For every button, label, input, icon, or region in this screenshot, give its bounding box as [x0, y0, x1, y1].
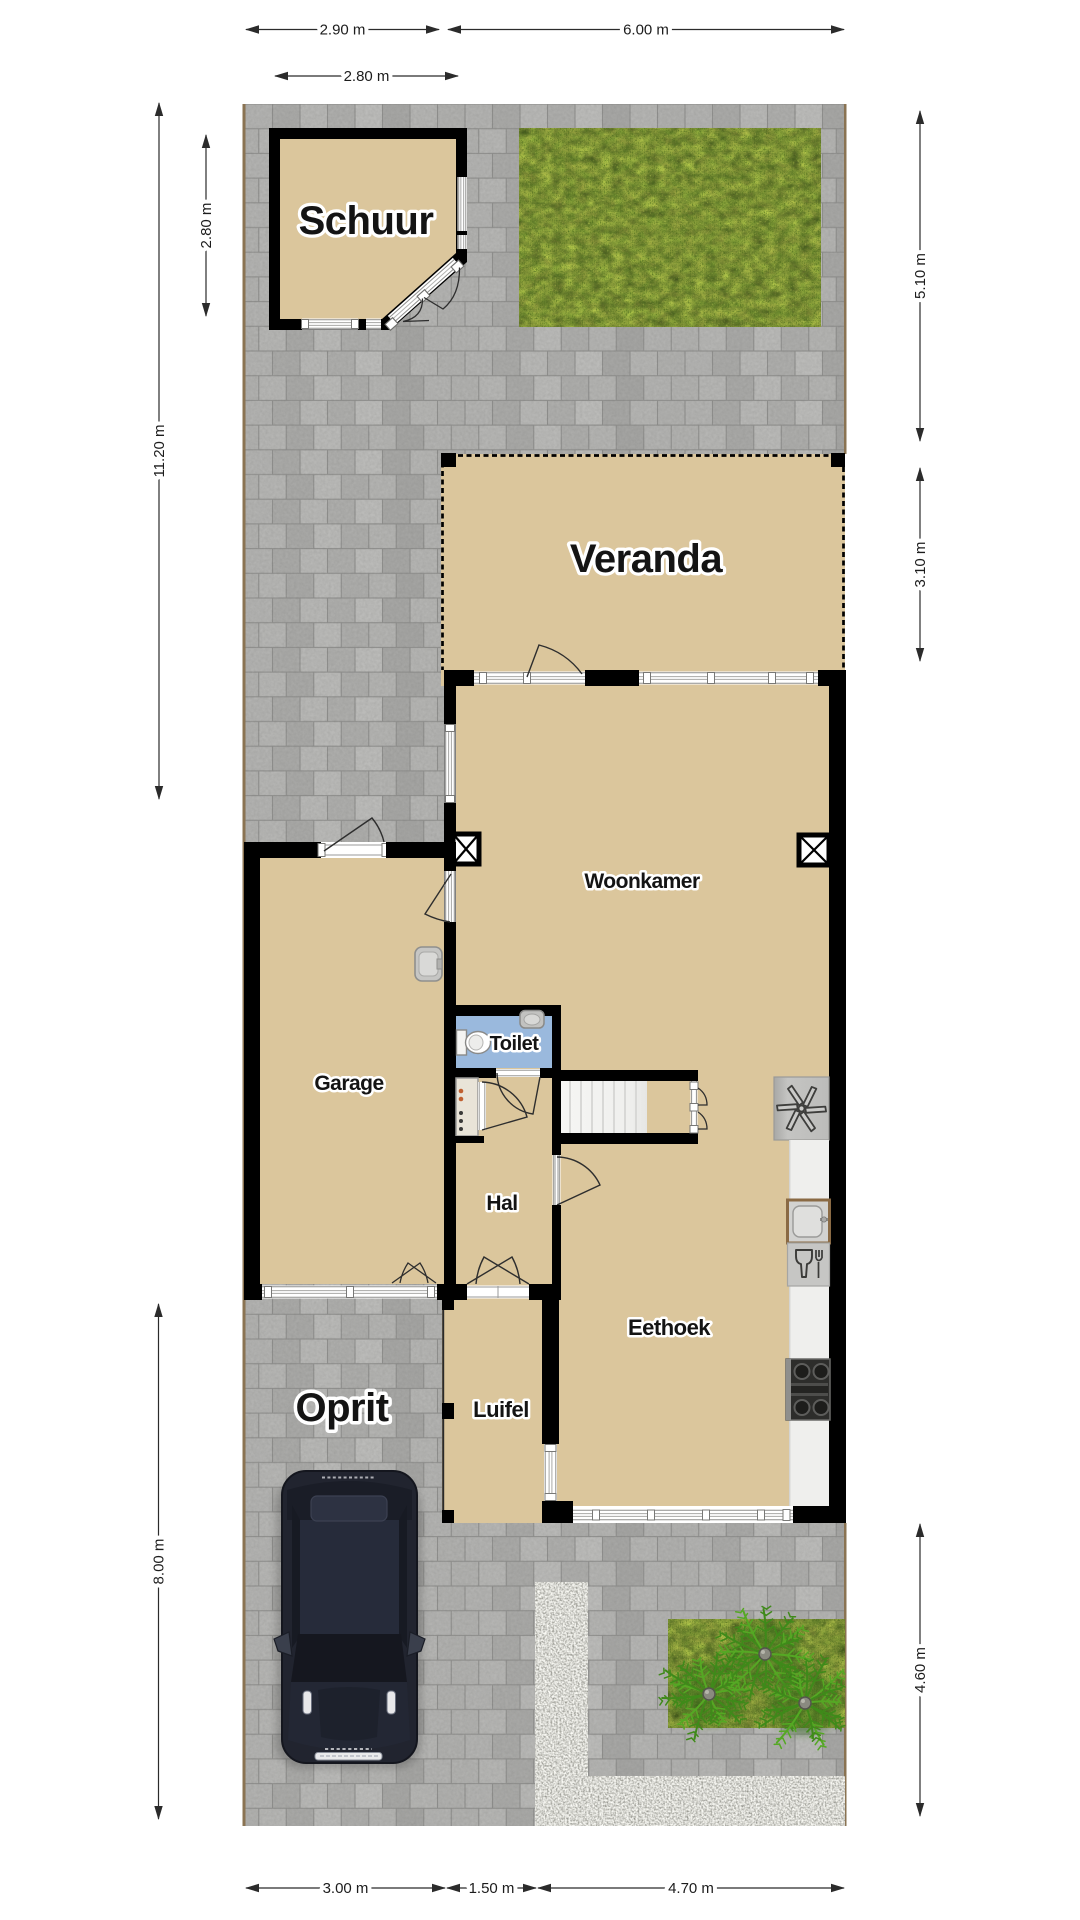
svg-text:4.70 m: 4.70 m [668, 1880, 714, 1897]
svg-text:5.10 m: 5.10 m [912, 253, 929, 299]
svg-text:Hal: Hal [486, 1192, 517, 1215]
svg-text:Woonkamer: Woonkamer [584, 870, 700, 893]
svg-text:2.80 m: 2.80 m [344, 68, 390, 85]
svg-text:11.20 m: 11.20 m [151, 424, 168, 477]
svg-text:Eethoek: Eethoek [628, 1315, 711, 1340]
svg-text:Luifel: Luifel [473, 1397, 529, 1422]
svg-text:2.80 m: 2.80 m [198, 203, 215, 249]
svg-text:Oprit: Oprit [295, 1386, 388, 1430]
svg-text:Schuur: Schuur [299, 199, 434, 243]
svg-text:1.50 m: 1.50 m [469, 1880, 515, 1897]
svg-text:4.60 m: 4.60 m [912, 1647, 929, 1693]
svg-text:Garage: Garage [314, 1072, 383, 1095]
svg-text:Toilet: Toilet [490, 1033, 540, 1055]
svg-text:Veranda: Veranda [570, 537, 723, 581]
svg-text:6.00 m: 6.00 m [623, 22, 669, 39]
svg-text:3.00 m: 3.00 m [323, 1880, 369, 1897]
svg-text:8.00 m: 8.00 m [151, 1539, 168, 1585]
svg-text:3.10 m: 3.10 m [912, 542, 929, 588]
svg-text:2.90 m: 2.90 m [320, 22, 366, 39]
